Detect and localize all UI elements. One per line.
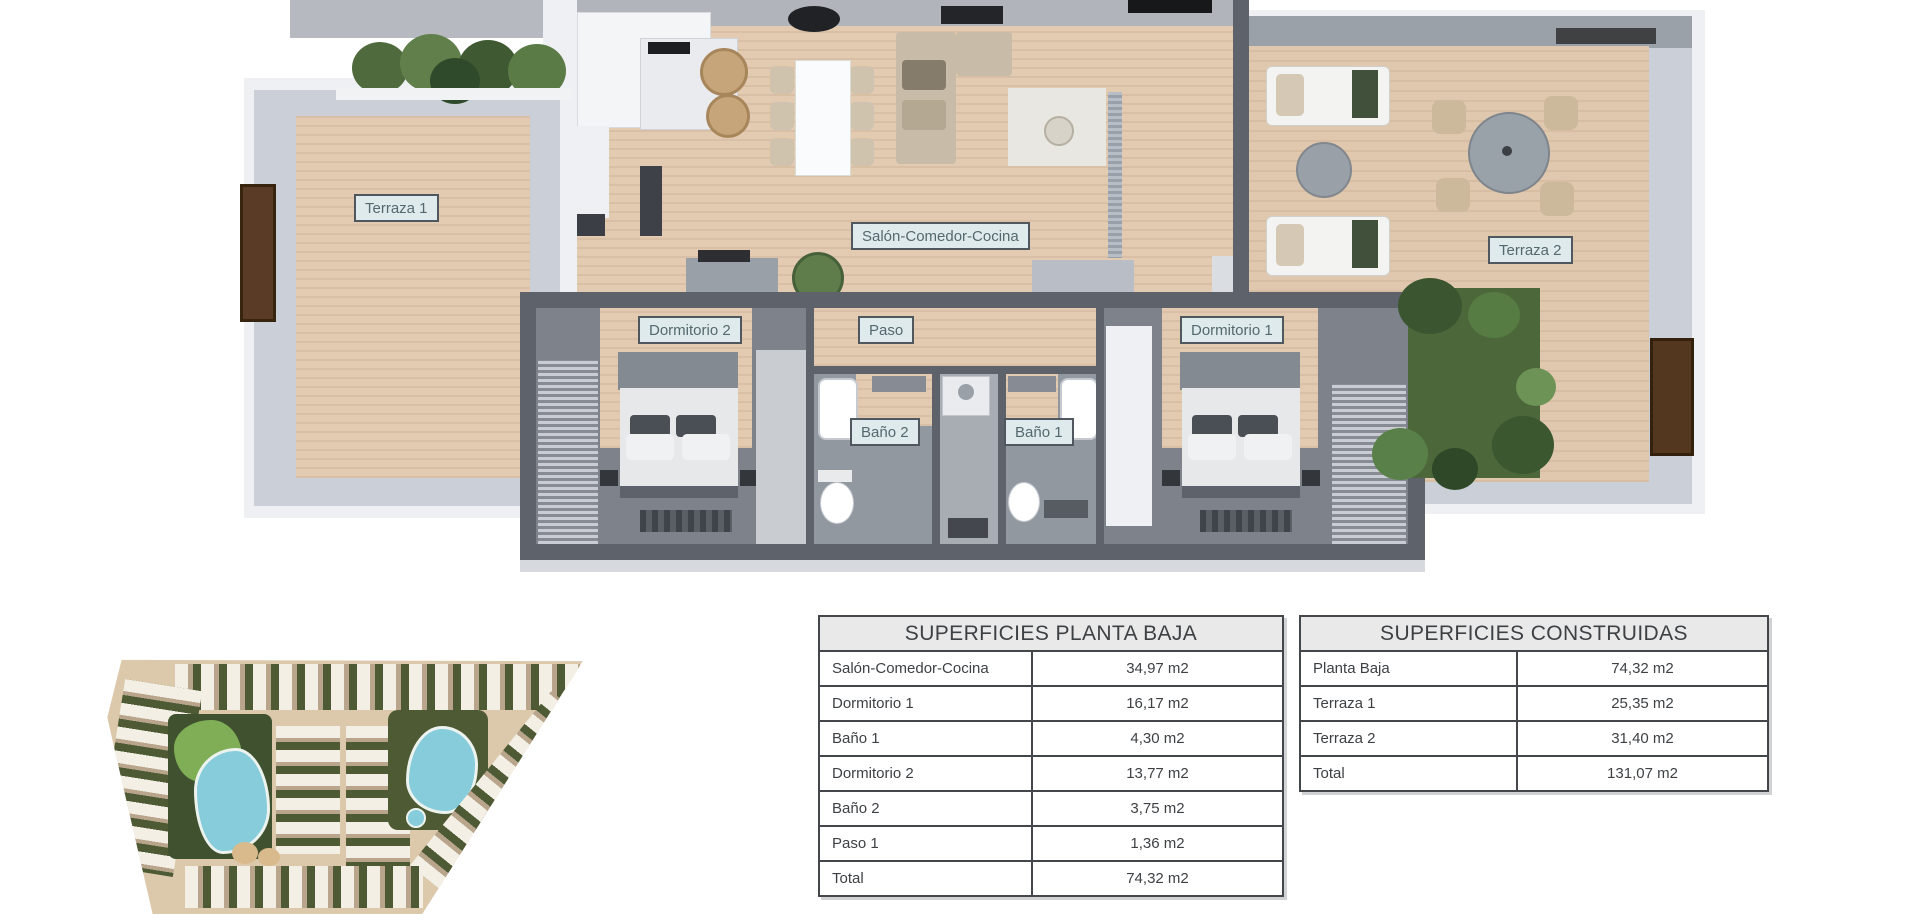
side-table-icon [1296,142,1352,198]
garden-plant-icon [1398,278,1462,334]
area-value-cell: 131,07 m2 [1516,757,1767,790]
console-decor [698,250,750,262]
bed-footboard [1182,486,1300,498]
table-title: SUPERFICIES PLANTA BAJA [820,617,1282,650]
room-label-bano2: Baño 2 [850,418,920,446]
wall [1096,308,1104,544]
garden-plant-icon [1468,292,1520,338]
table-row: Terraza 231,40 m2 [1301,720,1767,755]
garden-plant-icon [1492,416,1554,474]
site-plan [90,652,665,914]
bedroom-rug [640,510,732,532]
dining-chair-icon [850,66,874,94]
bed-headboard [618,352,738,390]
sand-area [258,848,280,866]
table-row: Baño 14,30 m2 [820,720,1282,755]
bath-mat [1044,500,1088,518]
wall [806,308,814,544]
tv-icon [1128,0,1212,13]
room-name-cell: Total [820,862,1031,895]
sideboard [1032,260,1134,292]
wall-segment [1212,256,1234,292]
patio-chair-icon [1540,182,1574,216]
table-row: Planta Baja74,32 m2 [1301,650,1767,685]
rattan-pendant-icon [700,48,748,96]
table-body: Salón-Comedor-Cocina34,97 m2Dormitorio 1… [820,650,1282,895]
table-title: SUPERFICIES CONSTRUIDAS [1301,617,1767,650]
table-row: Total74,32 m2 [820,860,1282,895]
area-value-cell: 4,30 m2 [1031,722,1282,755]
area-value-cell: 3,75 m2 [1031,792,1282,825]
room-name-cell: Baño 1 [820,722,1031,755]
lounger-towel [1352,220,1378,268]
table-row: Salón-Comedor-Cocina34,97 m2 [820,650,1282,685]
table-body: Planta Baja74,32 m2Terraza 125,35 m2Terr… [1301,650,1767,790]
dormitorio2-closet [756,350,806,544]
terraza1-door [240,184,276,322]
dormitorio1-wardrobe [1106,326,1152,526]
table-superficies-construidas: SUPERFICIES CONSTRUIDAS Planta Baja74,32… [1299,615,1769,792]
wall [814,366,1096,374]
nightstand-icon [1302,470,1320,486]
patio-chair-icon [1436,178,1470,212]
bed-footboard [620,486,738,498]
sand-area [232,842,258,864]
bedroom-rug [1200,510,1292,532]
table-superficies-planta-baja: SUPERFICIES PLANTA BAJA Salón-Comedor-Co… [818,615,1284,897]
bed-pillow [626,434,674,460]
coffee-table-icon [1044,116,1074,146]
room-label-paso: Paso [858,316,914,344]
toilet-tank [818,470,852,482]
sofa-icon [896,32,956,164]
rattan-pendant-icon [706,94,750,138]
shelf-unit [640,166,662,236]
dormitorio2-blinds [538,360,598,544]
area-value-cell: 13,77 m2 [1031,757,1282,790]
patio-table-center [1502,146,1512,156]
vanity-icon [1008,376,1056,392]
appliance-icon [948,518,988,538]
lounger-pillow [1276,74,1304,116]
bed-pillow [682,434,730,460]
room-name-cell: Baño 2 [820,792,1031,825]
bed-headboard [1180,352,1300,390]
room-name-cell: Planta Baja [1301,652,1516,685]
kitchen-shelf [577,214,605,236]
dining-chair-icon [850,102,874,130]
terraza2-lintel [1556,28,1656,44]
terraza1-floor [296,116,530,478]
top-concrete-wall [290,0,570,38]
sofa-cushion [902,60,946,90]
room-name-cell: Paso 1 [820,827,1031,860]
table-row: Dormitorio 213,77 m2 [820,755,1282,790]
building-row [185,866,423,908]
table-row: Paso 11,36 m2 [820,825,1282,860]
site-pool-small [406,808,426,828]
sofa-cushion [902,100,946,130]
room-name-cell: Terraza 1 [1301,687,1516,720]
wall [998,374,1006,544]
nightstand-icon [600,470,618,486]
dining-chair-icon [770,102,794,130]
toilet-icon [820,482,854,524]
washer-door [958,384,974,400]
area-value-cell: 31,40 m2 [1516,722,1767,755]
area-value-cell: 16,17 m2 [1031,687,1282,720]
area-value-cell: 74,32 m2 [1516,652,1767,685]
living-right-wall [1233,0,1249,300]
floorplan-page: Terraza 1 Salón-Comedor-Cocina Terraza 2… [0,0,1920,920]
room-name-cell: Terraza 2 [1301,722,1516,755]
area-value-cell: 1,36 m2 [1031,827,1282,860]
cooktop-icon [648,42,690,54]
building-row [276,726,340,854]
room-name-cell: Dormitorio 1 [820,687,1031,720]
table-row: Terraza 125,35 m2 [1301,685,1767,720]
curtain [1108,92,1122,258]
bed-pillow [1244,434,1292,460]
room-label-terraza2: Terraza 2 [1488,236,1573,264]
garden-plant-icon [1432,448,1478,490]
slab-shadow [520,560,1425,572]
toilet-icon [1008,482,1040,522]
planter-ledge [336,88,572,100]
room-name-cell: Salón-Comedor-Cocina [820,652,1031,685]
garden-plant-icon [1372,428,1428,480]
vanity-icon [872,376,926,392]
room-label-bano1: Baño 1 [1004,418,1074,446]
kitchen-column [577,126,609,218]
terraza2-door [1650,338,1694,456]
room-name-cell: Total [1301,757,1516,790]
ceiling-lamp-icon [788,6,840,32]
paso-floor [814,308,1096,366]
sofa-arm [956,32,1012,76]
building-row [175,664,580,710]
table-row: Baño 23,75 m2 [820,790,1282,825]
room-label-dormitorio2: Dormitorio 2 [638,316,742,344]
dining-table-icon [795,60,851,176]
room-name-cell: Dormitorio 2 [820,757,1031,790]
site-plot [90,652,665,914]
room-label-dormitorio1: Dormitorio 1 [1180,316,1284,344]
lounger-towel [1352,70,1378,118]
apartment-floorplan: Terraza 1 Salón-Comedor-Cocina Terraza 2… [0,0,1920,600]
dining-chair-icon [850,138,874,166]
site-pool-1 [194,748,270,854]
wall [932,374,940,544]
room-label-salon: Salón-Comedor-Cocina [851,222,1030,250]
dining-chair-icon [770,66,794,94]
bed-pillow [1188,434,1236,460]
patio-chair-icon [1544,96,1578,130]
patio-chair-icon [1432,100,1466,134]
garden-plant-icon [1516,368,1556,406]
dining-chair-icon [770,138,794,166]
console-table [686,258,778,292]
table-row: Dormitorio 116,17 m2 [820,685,1282,720]
nightstand-icon [1162,470,1180,486]
wall-unit-icon [941,6,1003,24]
area-value-cell: 74,32 m2 [1031,862,1282,895]
lounger-pillow [1276,224,1304,266]
table-row: Total131,07 m2 [1301,755,1767,790]
area-value-cell: 25,35 m2 [1516,687,1767,720]
area-value-cell: 34,97 m2 [1031,652,1282,685]
room-label-terraza1: Terraza 1 [354,194,439,222]
